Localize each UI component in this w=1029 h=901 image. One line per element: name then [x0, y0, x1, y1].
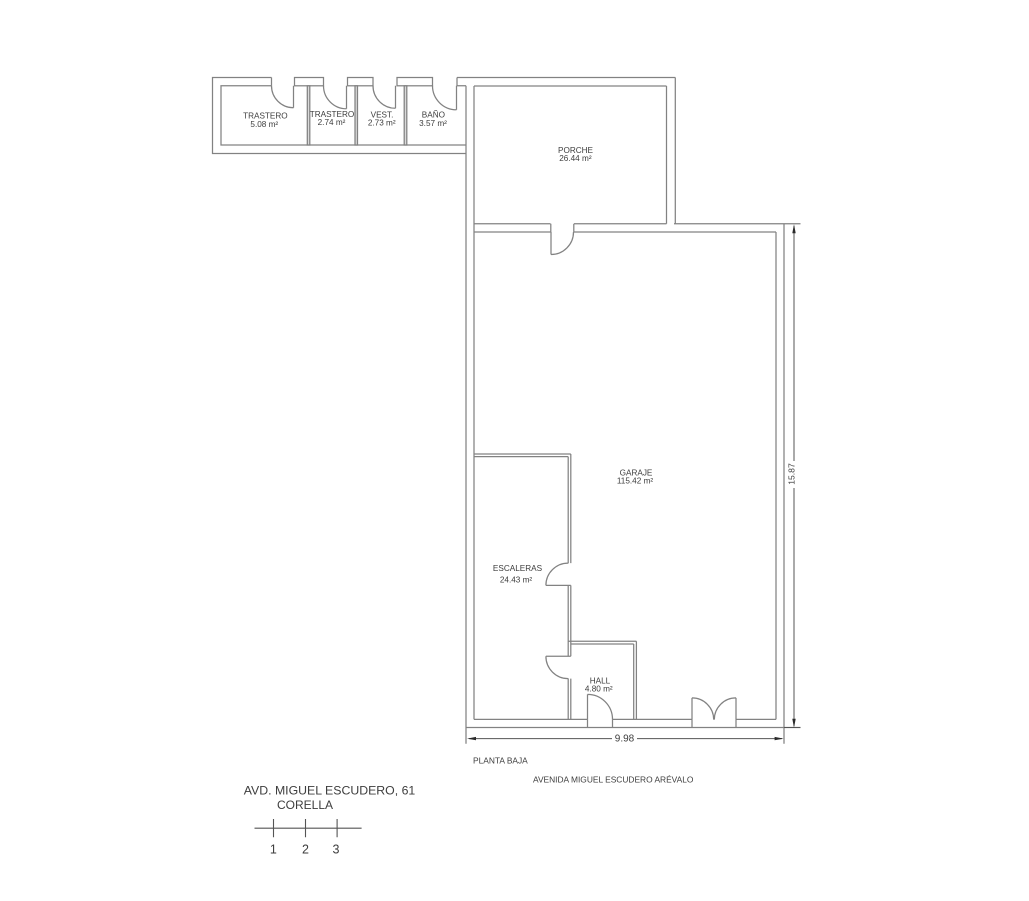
svg-text:2.74 m²: 2.74 m² [318, 118, 346, 127]
svg-text:15.87: 15.87 [787, 463, 797, 485]
svg-text:4.80 m²: 4.80 m² [585, 684, 613, 693]
svg-text:PLANTA BAJA: PLANTA BAJA [473, 755, 528, 765]
svg-text:CORELLA: CORELLA [277, 798, 333, 812]
svg-text:26.44 m²: 26.44 m² [559, 154, 592, 163]
svg-text:3.57 m²: 3.57 m² [419, 119, 447, 128]
svg-text:24.43 m²: 24.43 m² [500, 575, 533, 584]
svg-text:AVD. MIGUEL ESCUDERO, 61: AVD. MIGUEL ESCUDERO, 61 [244, 784, 416, 798]
svg-text:115.42 m²: 115.42 m² [617, 476, 654, 485]
svg-text:3: 3 [333, 843, 340, 857]
svg-text:2: 2 [302, 843, 309, 857]
svg-text:5.08 m²: 5.08 m² [250, 120, 278, 129]
svg-text:2.73 m²: 2.73 m² [368, 119, 396, 128]
svg-text:BAÑO: BAÑO [422, 109, 445, 119]
svg-text:9.98: 9.98 [615, 733, 635, 744]
svg-text:1: 1 [270, 843, 277, 857]
svg-text:AVENIDA MIGUEL ESCUDERO ARÉVAL: AVENIDA MIGUEL ESCUDERO ARÉVALO [533, 775, 694, 785]
svg-text:ESCALERAS: ESCALERAS [493, 564, 543, 573]
